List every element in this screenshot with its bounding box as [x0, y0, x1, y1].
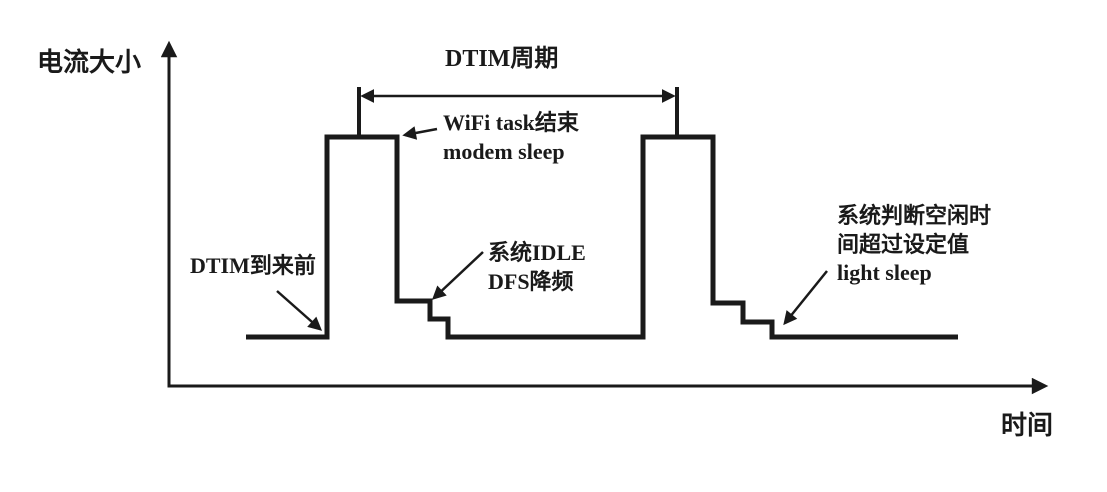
annotation-arrow-sys-idle-dfs	[434, 252, 483, 298]
annotation-text-line: 系统IDLE	[488, 239, 586, 268]
annotation-text-line: 系统判断空闲时	[837, 202, 991, 231]
annotation-arrow-light-sleep	[785, 271, 827, 323]
annotation-text-line: DFS降频	[488, 268, 586, 297]
annotation-label-dtim-arrival: DTIM到来前	[190, 252, 316, 281]
x-axis-label: 时间	[1001, 409, 1053, 443]
annotation-text-line: light sleep	[837, 259, 991, 288]
y-axis-label: 电流大小	[37, 46, 141, 80]
annotation-text-line: 间超过设定值	[837, 231, 991, 260]
annotation-arrow-dtim-arrival	[277, 291, 320, 329]
annotation-text-line: WiFi task结束	[443, 109, 579, 138]
annotation-text-line: modem sleep	[443, 138, 579, 167]
annotation-label-wifi-task-end: WiFi task结束modem sleep	[443, 109, 579, 166]
annotation-label-light-sleep: 系统判断空闲时间超过设定值light sleep	[837, 202, 991, 288]
dtim-period-label: DTIM周期	[445, 44, 558, 75]
diagram-stage: 电流大小 时间 DTIM周期 DTIM到来前WiFi task结束modem s…	[0, 0, 1107, 492]
annotation-label-sys-idle-dfs: 系统IDLEDFS降频	[488, 239, 586, 296]
annotation-arrow-wifi-task-end	[405, 129, 437, 135]
annotation-text-line: DTIM到来前	[190, 252, 316, 281]
